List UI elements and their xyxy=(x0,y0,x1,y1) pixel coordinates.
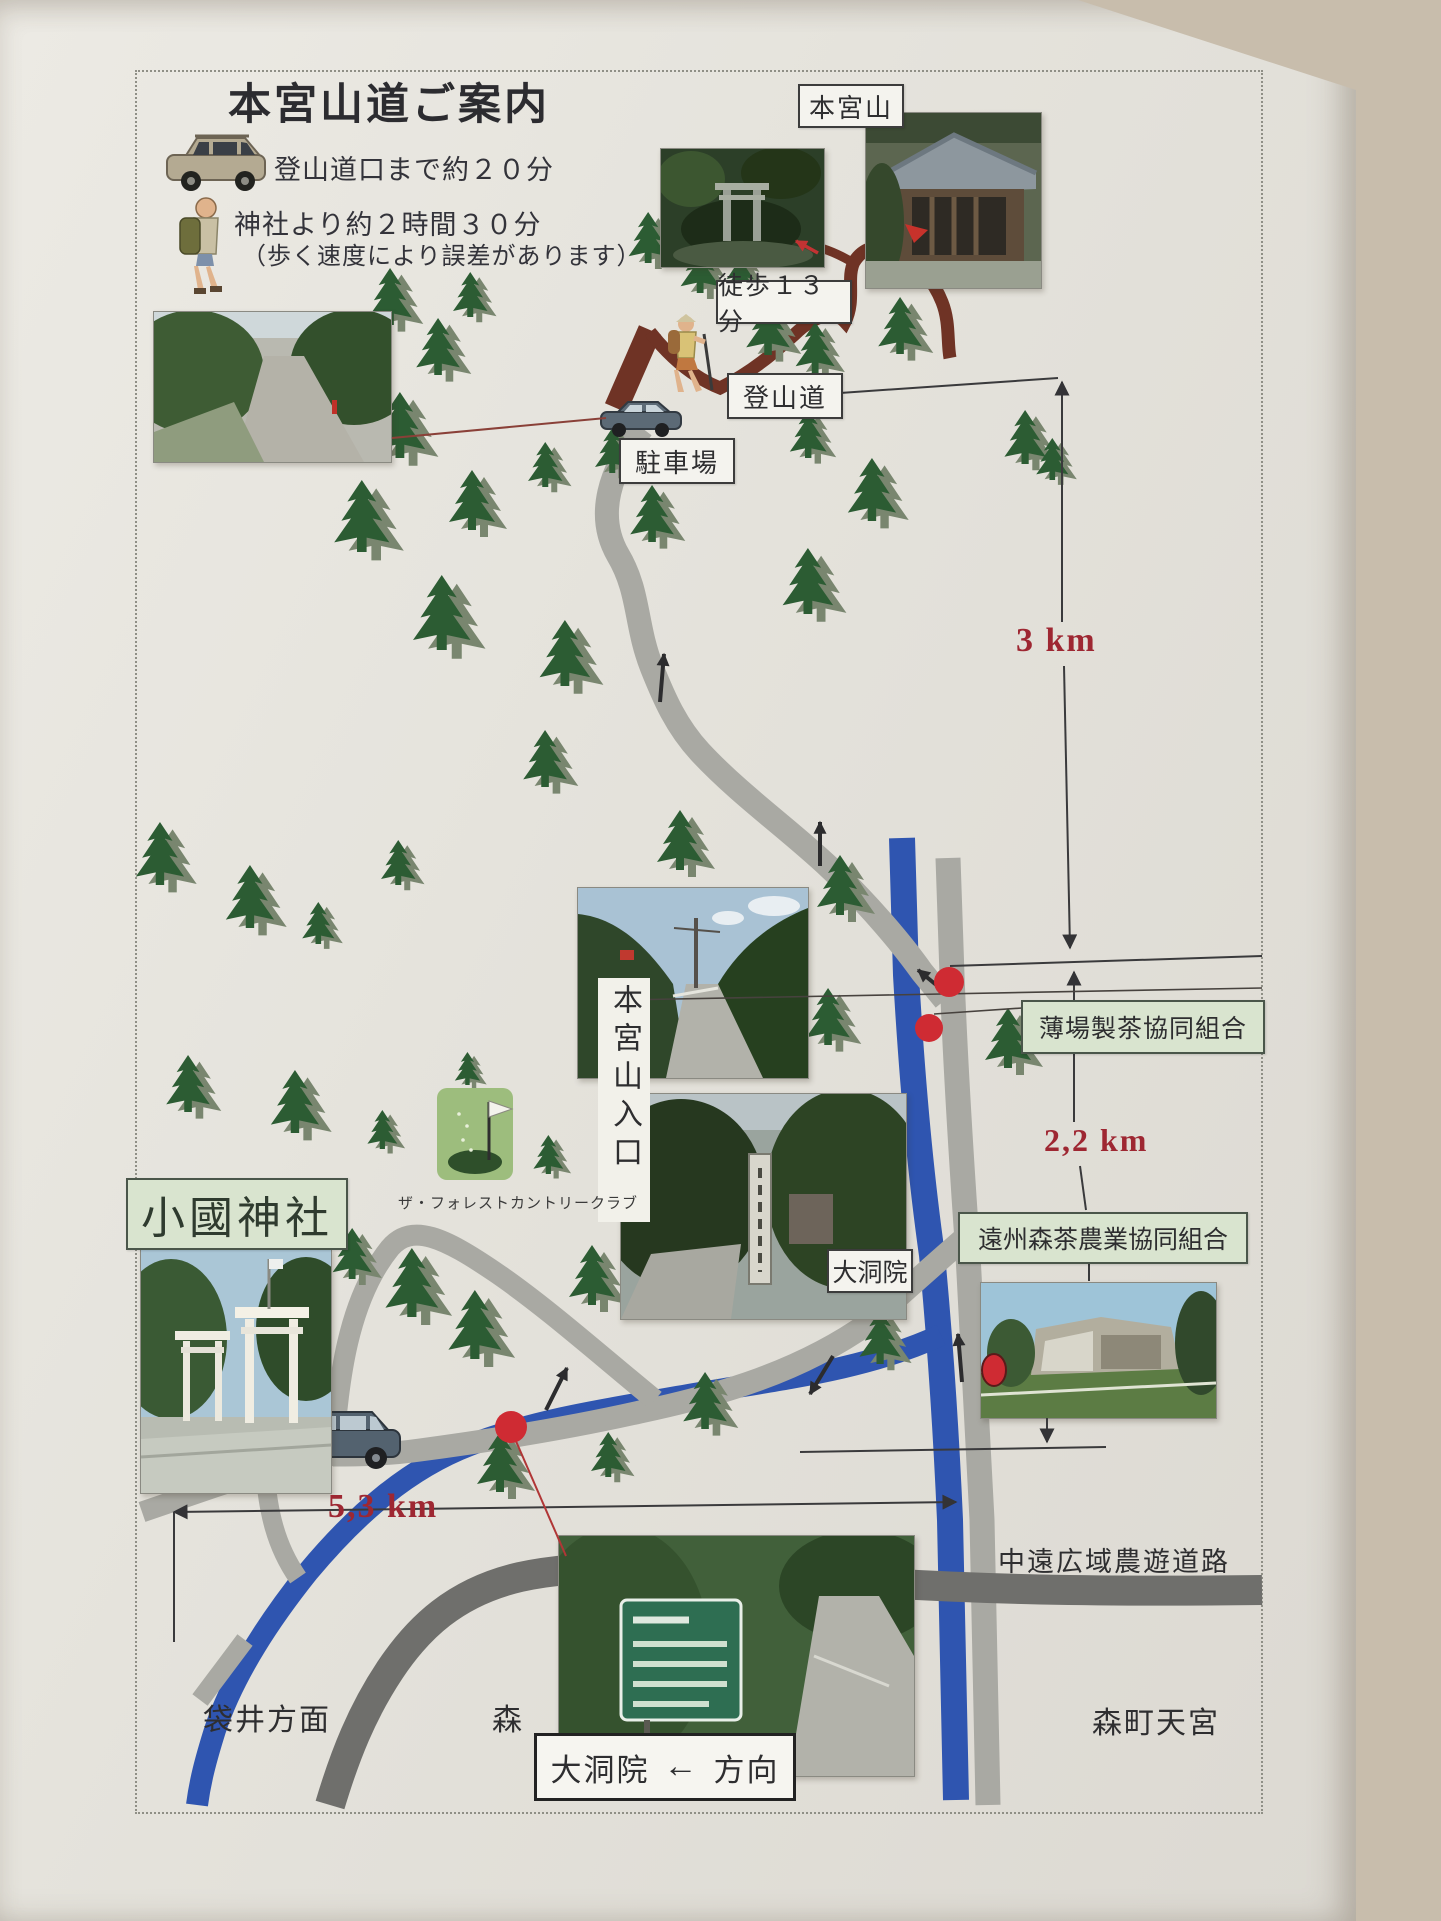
car-time-note: 登山道口まで約２０分 xyxy=(274,148,554,187)
label-okuni-shrine: 小國神社 xyxy=(126,1178,348,1250)
label-golf-club: ザ・フォレストカントリークラブ xyxy=(398,1192,638,1213)
distance-5-3km: 5,3 km xyxy=(328,1488,438,1526)
okuni-junction-red-dot xyxy=(495,1411,527,1443)
label-morimachi-tengu: 森町天宮 xyxy=(1092,1698,1220,1742)
photo-red-triangle-icon xyxy=(905,224,928,243)
direction-place: 大洞院 xyxy=(551,1745,650,1790)
junction-red-dot xyxy=(934,967,964,997)
label-usuba-tea-coop: 薄場製茶協同組合 xyxy=(1021,1000,1265,1054)
left-arrow-icon: ← xyxy=(664,1748,700,1786)
label-mori: 森 xyxy=(492,1695,524,1739)
label-daitoin: 大洞院 xyxy=(827,1249,913,1293)
label-parking: 駐車場 xyxy=(619,438,735,484)
distance-3km: 3 km xyxy=(1016,622,1097,660)
direction-suffix: 方向 xyxy=(714,1745,780,1790)
dimension-5-3km xyxy=(174,1502,956,1512)
label-trailhead: 登山道 xyxy=(727,373,843,419)
label-enshu-tea-coop: 遠州森茶農業協同組合 xyxy=(958,1212,1248,1264)
junction-red-dot xyxy=(915,1014,943,1042)
leader-lines xyxy=(392,418,1262,1556)
label-walk-13min: 徒歩１３分 xyxy=(716,280,852,324)
photo-red-oval-icon xyxy=(982,1354,1006,1386)
daitoin-direction-box: 大洞院 ← 方向 xyxy=(534,1733,796,1801)
label-chuen-road: 中遠広域農遊道路 xyxy=(998,1540,1230,1579)
walk-time-note-sub: （歩く速度により誤差があります） xyxy=(242,236,642,271)
label-summit: 本宮山 xyxy=(798,84,904,128)
label-mountain-entrance: 本宮山入口 xyxy=(598,978,650,1222)
map-photo-page: 本宮山道ご案内 登山道口まで約２０分 神社より約２時間３０分 （歩く速度により誤… xyxy=(0,0,1441,1921)
page-title: 本宮山道ご案内 xyxy=(228,70,550,132)
label-fukuroi-direction: 袋井方面 xyxy=(203,1695,331,1739)
distance-2-2km: 2,2 km xyxy=(1044,1122,1148,1159)
trail-red-arrow-icon xyxy=(796,241,818,253)
